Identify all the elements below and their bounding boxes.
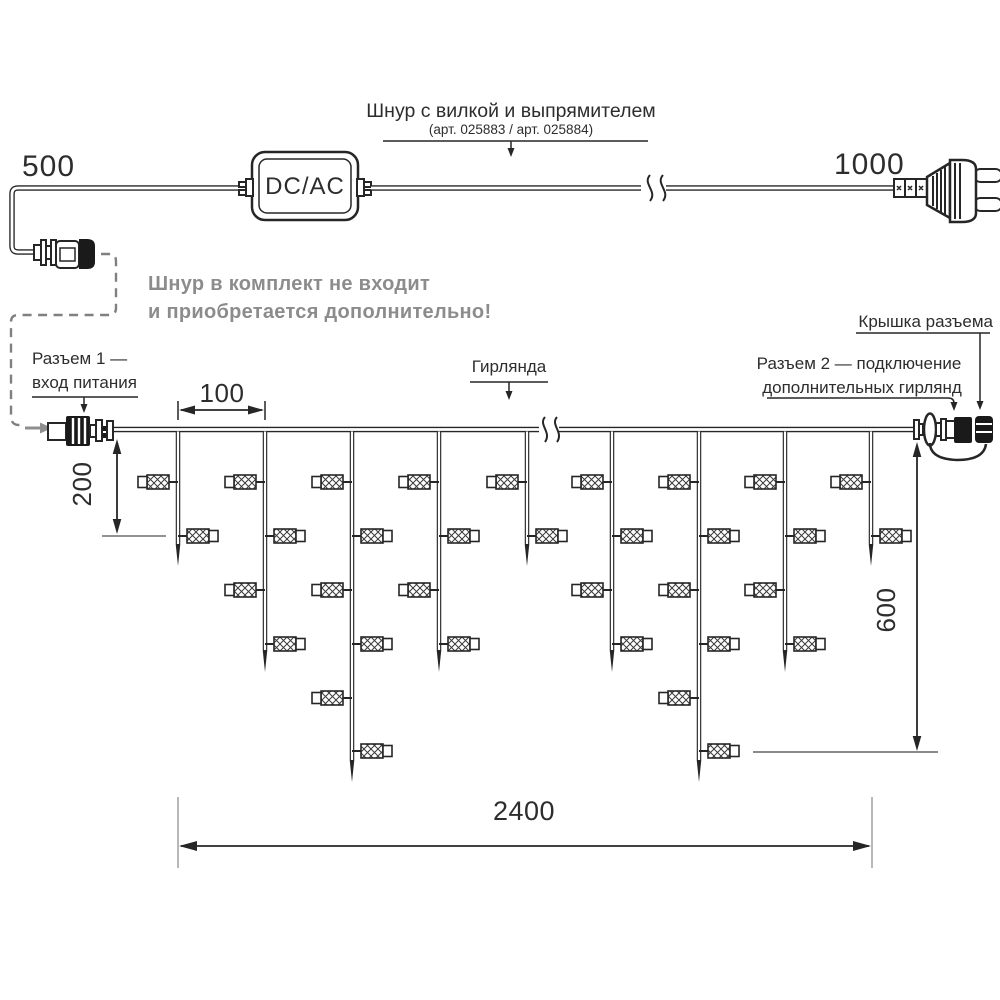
bulb-cap bbox=[659, 477, 668, 488]
bulb-cap bbox=[138, 477, 147, 488]
break-gap bbox=[641, 178, 666, 199]
cap-tether bbox=[930, 443, 986, 460]
dim-100-label: 100 bbox=[200, 378, 245, 408]
cord-wire-left bbox=[12, 188, 246, 252]
note-line2: и приобретается дополнительно! bbox=[148, 301, 491, 323]
bulb-lamp bbox=[708, 529, 730, 543]
connector1-line1: Разъем 1 — bbox=[32, 349, 127, 368]
garland-drops bbox=[138, 432, 911, 783]
input-connector bbox=[48, 416, 113, 446]
bulb-cap bbox=[572, 477, 581, 488]
cord-subtitle: (арт. 025883 / арт. 025884) bbox=[429, 122, 593, 137]
bulb-lamp bbox=[408, 583, 430, 597]
plug-pin-bottom bbox=[974, 198, 1000, 211]
bulb-lamp bbox=[668, 691, 690, 705]
dim-1000-label: 1000 bbox=[834, 148, 905, 181]
bulb-cap bbox=[831, 477, 840, 488]
bulb-cap bbox=[312, 585, 321, 596]
bulb-cap bbox=[558, 531, 567, 542]
bulb-lamp bbox=[668, 583, 690, 597]
bulb-lamp bbox=[794, 637, 816, 651]
dim-100: 100 bbox=[178, 378, 265, 420]
dim-2400-label: 2400 bbox=[493, 796, 555, 826]
bulb-lamp bbox=[234, 583, 256, 597]
bulb-lamp bbox=[621, 529, 643, 543]
bulb-cap bbox=[643, 639, 652, 650]
bulb-lamp bbox=[361, 637, 383, 651]
bulb-cap bbox=[730, 531, 739, 542]
bulb-lamp bbox=[794, 529, 816, 543]
cord-title-block: Шнур с вилкой и выпрямителем (арт. 02588… bbox=[366, 100, 655, 157]
bulb-cap bbox=[225, 477, 234, 488]
bulb-lamp bbox=[147, 475, 169, 489]
drop-tip bbox=[869, 544, 874, 566]
bulb-cap bbox=[643, 531, 652, 542]
dim-2400: 2400 bbox=[178, 796, 872, 868]
bulb-cap bbox=[225, 585, 234, 596]
connector2-line2: дополнительных гирлянд bbox=[762, 378, 962, 397]
bulb-lamp bbox=[361, 744, 383, 758]
end-connector bbox=[914, 414, 993, 461]
bulb-lamp bbox=[880, 529, 902, 543]
bulb-lamp bbox=[234, 475, 256, 489]
dim-200-label: 200 bbox=[67, 462, 97, 507]
bulb-lamp bbox=[361, 529, 383, 543]
bulb-cap bbox=[383, 531, 392, 542]
dcac-label: DC/AC bbox=[265, 173, 345, 200]
bulb-lamp bbox=[754, 583, 776, 597]
bulb-lamp bbox=[536, 529, 558, 543]
bulb-lamp bbox=[274, 637, 296, 651]
connector1-label: Разъем 1 — вход питания bbox=[32, 349, 138, 413]
dashed-leader bbox=[11, 254, 116, 425]
bulb-cap bbox=[209, 531, 218, 542]
bulb-cap bbox=[730, 639, 739, 650]
bulb-cap bbox=[399, 477, 408, 488]
bulb-lamp bbox=[621, 637, 643, 651]
bulb-lamp bbox=[448, 529, 470, 543]
drop-tip bbox=[176, 544, 181, 566]
bulb-lamp bbox=[581, 583, 603, 597]
connector-cap-black bbox=[79, 239, 95, 269]
bulb-lamp bbox=[187, 529, 209, 543]
bulb-cap bbox=[383, 639, 392, 650]
bulb-lamp bbox=[708, 637, 730, 651]
bulb-lamp bbox=[274, 529, 296, 543]
connector2-label: Разъем 2 — подключение дополнительных ги… bbox=[757, 354, 962, 411]
plug-pin-top bbox=[974, 169, 1000, 182]
bulb-cap bbox=[487, 477, 496, 488]
bulb-cap bbox=[383, 746, 392, 757]
dim-500-label: 500 bbox=[22, 150, 75, 183]
diagram-canvas: 500 DC/AC bbox=[0, 0, 1000, 1000]
bulb-cap bbox=[816, 531, 825, 542]
bulb-lamp bbox=[708, 744, 730, 758]
bulb-lamp bbox=[321, 583, 343, 597]
bulb-cap bbox=[745, 477, 754, 488]
note-block: Шнур в комплект не входит и приобретаетс… bbox=[148, 273, 491, 323]
bulb-cap bbox=[572, 585, 581, 596]
bulb-cap bbox=[659, 585, 668, 596]
connector2-line1: Разъем 2 — подключение bbox=[757, 354, 962, 373]
drop-tip bbox=[610, 650, 615, 672]
cord-end-connector bbox=[34, 239, 95, 269]
drop-tip bbox=[525, 544, 530, 566]
bulb-lamp bbox=[754, 475, 776, 489]
cord-title: Шнур с вилкой и выпрямителем bbox=[366, 100, 655, 122]
bulb-cap bbox=[745, 585, 754, 596]
bulb-cap bbox=[399, 585, 408, 596]
bulb-lamp bbox=[408, 475, 430, 489]
bulb-cap bbox=[902, 531, 911, 542]
bulb-cap bbox=[470, 639, 479, 650]
drop-tip bbox=[783, 650, 788, 672]
bulb-cap bbox=[296, 531, 305, 542]
bulb-cap bbox=[730, 746, 739, 757]
bulb-lamp bbox=[581, 475, 603, 489]
dim-600-label: 600 bbox=[871, 588, 901, 633]
bulb-lamp bbox=[668, 475, 690, 489]
bulb-lamp bbox=[496, 475, 518, 489]
bulb-cap bbox=[816, 639, 825, 650]
connector-loop bbox=[924, 414, 936, 446]
garland-schematic: 500 DC/AC bbox=[0, 0, 1000, 1000]
drop-tip bbox=[697, 760, 702, 782]
bulb-lamp bbox=[840, 475, 862, 489]
bulb-cap bbox=[470, 531, 479, 542]
bulb-cap bbox=[312, 693, 321, 704]
drop-tip bbox=[263, 650, 268, 672]
note-line1: Шнур в комплект не входит bbox=[148, 273, 430, 295]
bulb-lamp bbox=[321, 691, 343, 705]
garland-label-text: Гирлянда bbox=[472, 357, 547, 376]
dcac-converter: DC/AC bbox=[239, 152, 371, 220]
cap-label-text: Крышка разъема bbox=[858, 312, 993, 331]
drop-tip bbox=[350, 760, 355, 782]
bulb-cap bbox=[312, 477, 321, 488]
connector1-line2: вход питания bbox=[32, 373, 137, 392]
garland-label: Гирлянда bbox=[470, 357, 548, 400]
bulb-lamp bbox=[448, 637, 470, 651]
bulb-cap bbox=[659, 693, 668, 704]
bulb-cap bbox=[296, 639, 305, 650]
connector-cap bbox=[975, 416, 993, 443]
drop-tip bbox=[437, 650, 442, 672]
bulb-lamp bbox=[321, 475, 343, 489]
garland-section: Разъем 1 — вход питания Гирлянда Крышка … bbox=[32, 312, 994, 868]
connector2-body bbox=[954, 417, 972, 443]
power-plug bbox=[894, 160, 1000, 222]
